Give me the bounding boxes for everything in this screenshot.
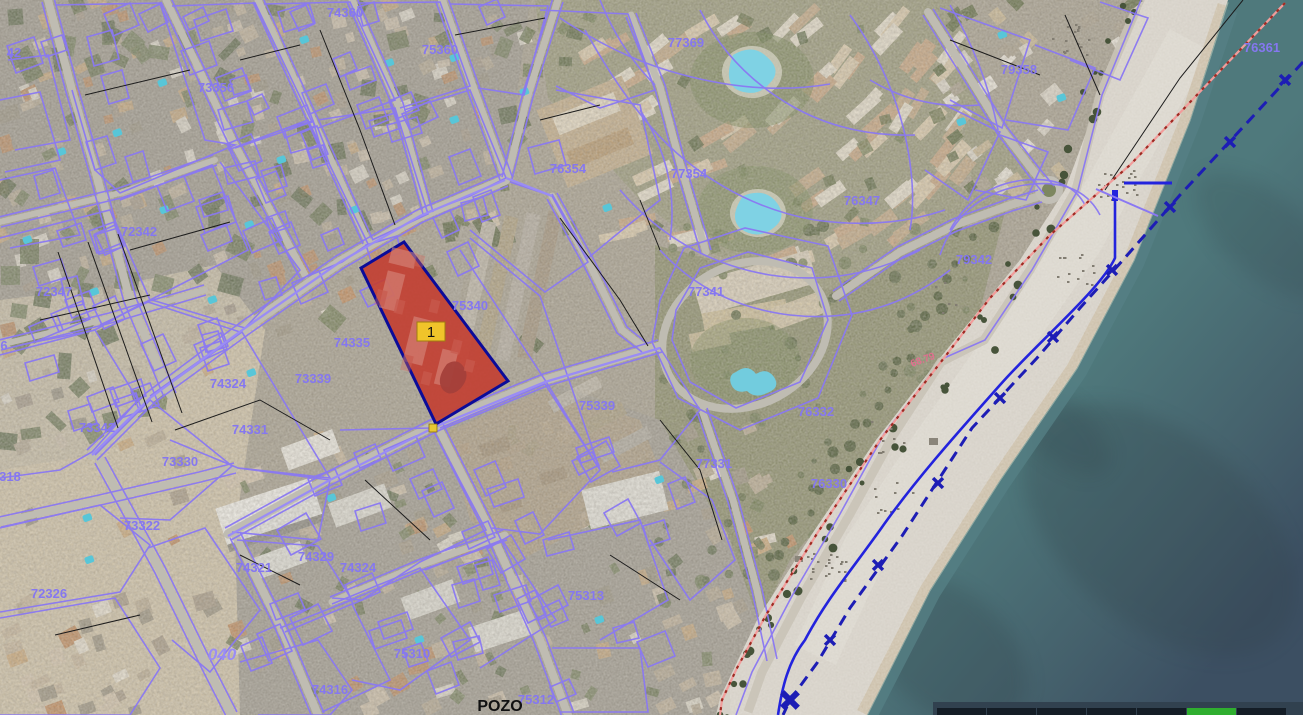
svg-text:79358: 79358 [1001, 62, 1037, 77]
svg-text:75310: 75310 [394, 646, 430, 661]
svg-text:040: 040 [208, 645, 237, 664]
svg-text:42: 42 [7, 45, 21, 60]
svg-text:1: 1 [427, 324, 435, 341]
svg-text:75340: 75340 [452, 298, 488, 313]
svg-text:74316: 74316 [312, 682, 348, 697]
svg-text:76347: 76347 [844, 193, 880, 208]
svg-text:72326: 72326 [31, 586, 67, 601]
svg-text:74324: 74324 [210, 376, 247, 391]
svg-text:76330: 76330 [811, 476, 847, 491]
svg-text:73330: 73330 [162, 454, 198, 469]
svg-text:75360: 75360 [422, 42, 458, 57]
svg-text:77354: 77354 [671, 166, 708, 181]
svg-text:74324: 74324 [340, 560, 377, 575]
svg-text:73342: 73342 [79, 420, 115, 435]
svg-text:73322: 73322 [124, 518, 160, 533]
svg-text:72347: 72347 [36, 284, 72, 299]
svg-text:79342: 79342 [956, 252, 992, 267]
svg-text:75339: 75339 [579, 398, 615, 413]
svg-text:77369: 77369 [668, 35, 704, 50]
svg-text:318: 318 [0, 469, 21, 484]
svg-text:75312: 75312 [518, 692, 554, 707]
svg-text:76361: 76361 [1244, 40, 1280, 55]
svg-text:72342: 72342 [121, 224, 157, 239]
svg-text:74331: 74331 [232, 422, 268, 437]
svg-text:76332: 76332 [798, 404, 834, 419]
svg-text:74360: 74360 [327, 5, 363, 20]
svg-text:74329: 74329 [298, 549, 334, 564]
svg-text:77341: 77341 [688, 284, 724, 299]
svg-text:75313: 75313 [568, 588, 604, 603]
svg-text:73339: 73339 [295, 371, 331, 386]
svg-text:POZO: POZO [477, 698, 522, 715]
svg-text:74321: 74321 [236, 560, 272, 575]
svg-text:76354: 76354 [550, 161, 587, 176]
svg-text:74335: 74335 [334, 335, 370, 350]
svg-text:6: 6 [0, 338, 7, 353]
svg-text:73356: 73356 [198, 80, 234, 95]
svg-text:77331: 77331 [696, 456, 732, 471]
